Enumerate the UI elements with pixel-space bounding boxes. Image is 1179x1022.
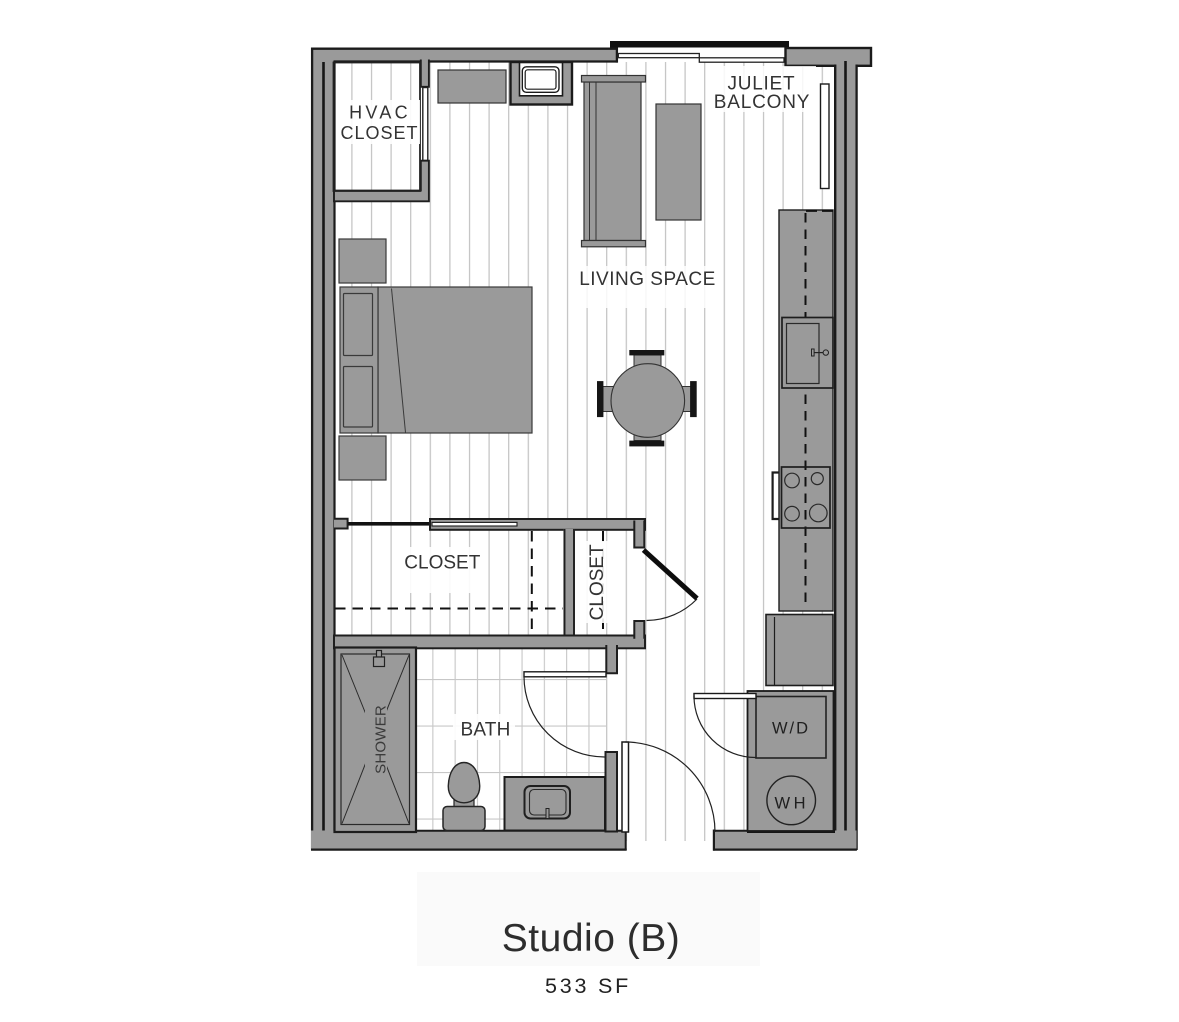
svg-text:HVAC: HVAC: [349, 103, 411, 123]
svg-text:LIVING SPACE: LIVING SPACE: [579, 269, 716, 290]
svg-text:BATH: BATH: [460, 720, 510, 741]
svg-text:BALCONY: BALCONY: [714, 92, 810, 113]
svg-text:533 SF: 533 SF: [545, 974, 631, 998]
svg-text:WH: WH: [775, 794, 810, 812]
svg-text:CLOSET: CLOSET: [587, 544, 608, 620]
svg-text:CLOSET: CLOSET: [340, 123, 418, 143]
svg-text:SHOWER: SHOWER: [373, 705, 390, 774]
svg-text:Studio (B): Studio (B): [502, 917, 680, 960]
svg-text:W/D: W/D: [772, 720, 810, 738]
svg-text:CLOSET: CLOSET: [404, 553, 480, 574]
